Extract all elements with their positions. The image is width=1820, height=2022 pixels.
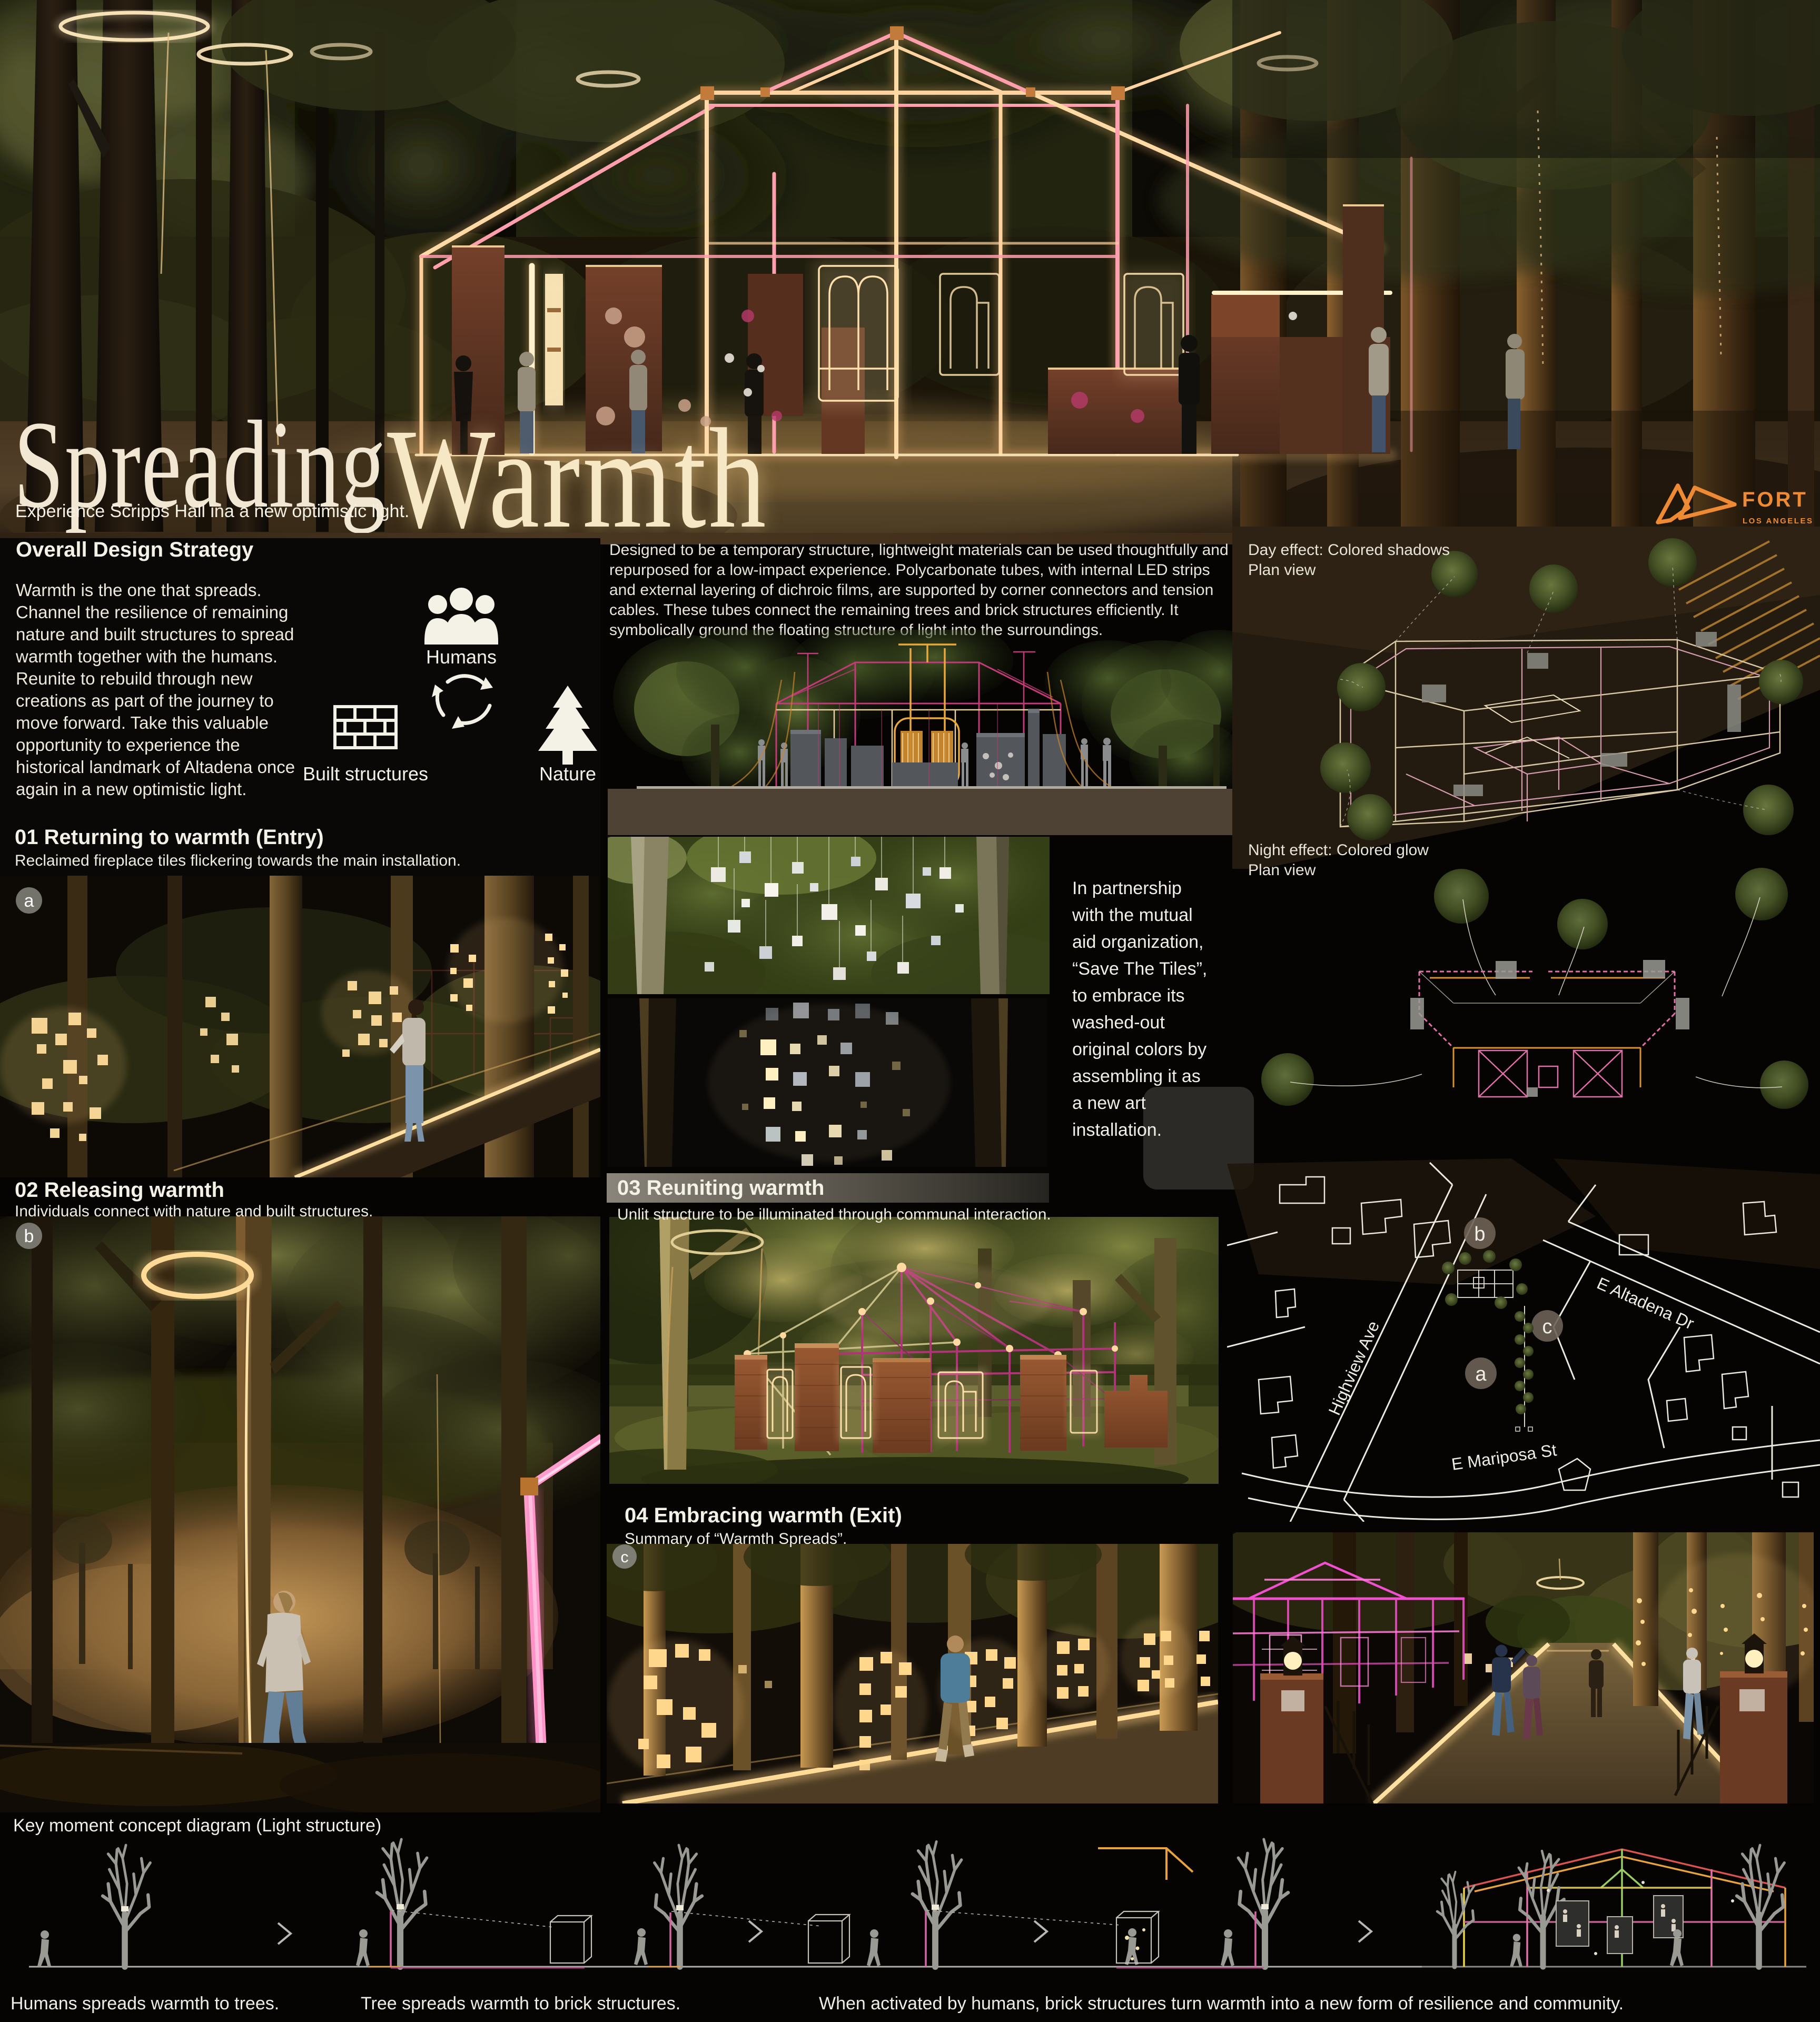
svg-text:b: b: [1474, 1223, 1485, 1245]
svg-text:Built structures: Built structures: [303, 763, 428, 785]
svg-text:E Mariposa St: E Mariposa St: [1450, 1440, 1558, 1474]
svg-text:Nature: Nature: [539, 763, 596, 785]
svg-text:FORT: FORT: [1742, 488, 1808, 511]
svg-text:E Altadena Dr: E Altadena Dr: [1594, 1274, 1697, 1333]
svg-text:Highview Ave: Highview Ave: [1325, 1318, 1383, 1418]
svg-text:LOS ANGELES: LOS ANGELES: [1743, 517, 1813, 526]
svg-text:a: a: [24, 891, 34, 911]
svg-text:Humans: Humans: [426, 646, 497, 668]
svg-text:a: a: [1475, 1363, 1487, 1385]
svg-text:c: c: [621, 1549, 629, 1566]
svg-text:b: b: [24, 1226, 34, 1246]
svg-text:c: c: [1542, 1316, 1552, 1338]
